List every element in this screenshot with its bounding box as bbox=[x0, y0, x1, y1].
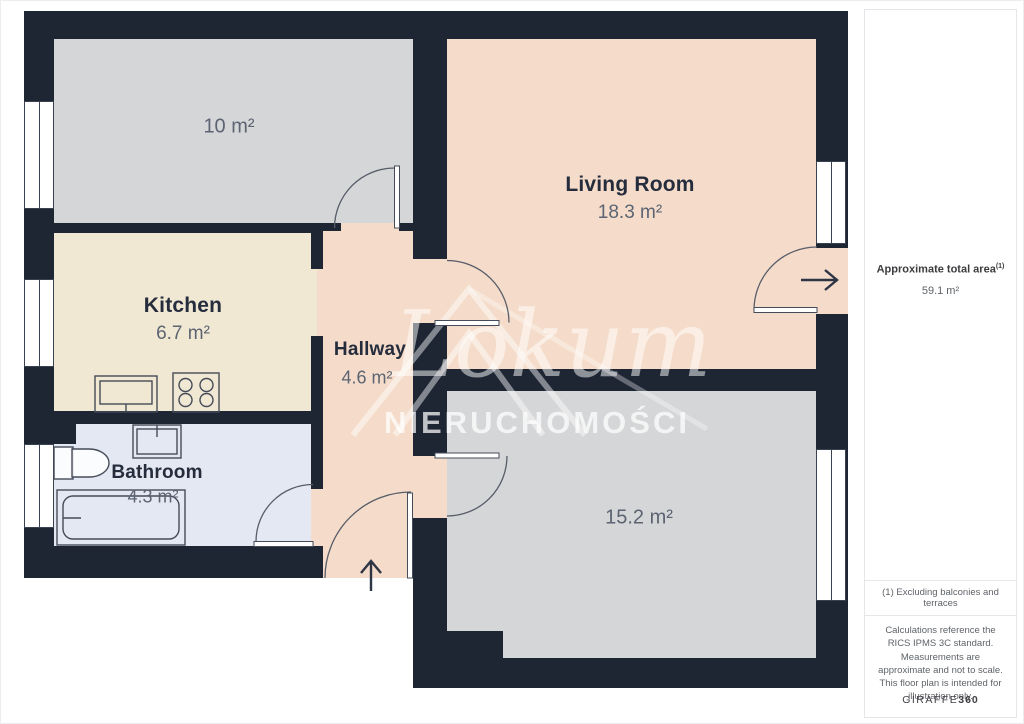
window-kitchen bbox=[24, 279, 54, 367]
giraffe360-logo-name: GIRAFFE bbox=[902, 694, 958, 706]
entrance-door-opening bbox=[816, 248, 848, 314]
hallway-floor bbox=[323, 231, 413, 578]
total-area-superscript: (1) bbox=[996, 263, 1005, 270]
info-sidebar: Approximate total area(1) 59.1 m² (1) Ex… bbox=[864, 9, 1017, 718]
bathroom-name-label: Bathroom bbox=[111, 462, 202, 484]
window-room-15 bbox=[816, 449, 846, 601]
room-15-floor-step bbox=[503, 631, 816, 658]
total-area-value: 59.1 m² bbox=[865, 285, 1016, 297]
living-room-name-label: Living Room bbox=[565, 173, 694, 197]
bathroom-floor bbox=[54, 424, 311, 546]
giraffe360-logo: GIRAFFE360 bbox=[865, 694, 1016, 706]
living-room-door-opening bbox=[413, 259, 447, 323]
disclaimer-text: Calculations reference the RICS IPMS 3C … bbox=[865, 624, 1016, 704]
window-bathroom bbox=[24, 444, 54, 528]
room-10-area-label: 10 m² bbox=[203, 116, 254, 139]
giraffe360-logo-suffix: 360 bbox=[958, 694, 979, 706]
kitchen-name-label: Kitchen bbox=[144, 294, 222, 318]
kitchen-area-label: 6.7 m² bbox=[156, 323, 210, 345]
total-area-label: Approximate total area(1) bbox=[865, 263, 1016, 276]
floor-plan-page: Lokum NIERUCHOMOŚCI 10 m² Kitchen 6.7 m²… bbox=[0, 0, 1024, 724]
room-15-area-label: 15.2 m² bbox=[605, 507, 673, 530]
living-room-area-label: 18.3 m² bbox=[598, 202, 662, 224]
window-living-room bbox=[816, 161, 846, 244]
bathroom-area-label: 4.3 m² bbox=[127, 487, 178, 508]
kitchen-floor bbox=[54, 233, 311, 411]
floor-plan: Lokum NIERUCHOMOŚCI 10 m² Kitchen 6.7 m²… bbox=[1, 1, 861, 724]
hallway-name-label: Hallway bbox=[334, 339, 406, 361]
hallway-area-label: 4.6 m² bbox=[341, 368, 392, 389]
total-area-label-text: Approximate total area bbox=[877, 264, 996, 276]
bathroom-door-opening bbox=[311, 489, 323, 546]
room-15-door-opening bbox=[413, 456, 447, 518]
window-room-10 bbox=[24, 101, 54, 209]
footnote-text: (1) Excluding balconies and terraces bbox=[865, 580, 1016, 615]
sidebar-divider-2 bbox=[865, 615, 1016, 616]
kitchen-hallway-opening-2 bbox=[317, 269, 323, 336]
room-10-door-opening bbox=[341, 223, 399, 233]
total-area-block: Approximate total area(1) 59.1 m² bbox=[865, 263, 1016, 297]
bathroom-corner-wall bbox=[54, 424, 76, 444]
